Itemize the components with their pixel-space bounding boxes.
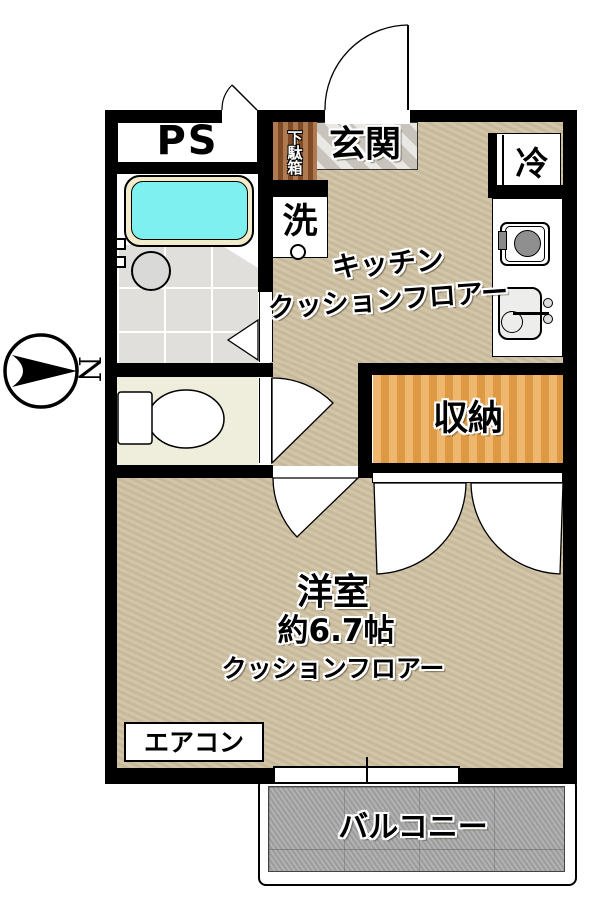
stove-knob — [498, 231, 507, 250]
room-label-2: 約6.7帖 — [236, 613, 436, 649]
wall-left — [105, 110, 117, 784]
faucet-knob — [543, 314, 553, 324]
wall-toilet-bottom — [105, 465, 273, 478]
ps-door-leaf — [232, 85, 257, 110]
wall-bottom — [460, 768, 577, 784]
ps-door-swing — [222, 85, 232, 110]
compass-circle — [5, 335, 77, 407]
wall-storage-left — [358, 363, 372, 478]
wall-top — [257, 110, 325, 122]
ps-label: PS — [117, 120, 258, 162]
shoe-cabinet-label: 下駄箱 — [273, 124, 317, 180]
room-label-1: 洋室 — [233, 574, 433, 612]
corridor-floor — [273, 363, 360, 478]
floor-plan: N PS 玄関 下駄箱 洗 冷 キッチン クッションフロアー 収納 洋室 約6.… — [0, 0, 601, 900]
balcony-label: バルコニー — [268, 810, 558, 846]
room-door-opening — [273, 466, 358, 478]
wall-bottom — [105, 768, 273, 784]
aircon-label: エアコン — [124, 722, 264, 762]
genkan-label: 玄関 — [312, 122, 418, 168]
bath-sink — [131, 251, 171, 291]
toilet-room — [117, 377, 258, 465]
wall-bath-side — [258, 122, 273, 292]
compass-north-label: N — [71, 356, 106, 382]
wall-storage-bottom — [372, 463, 563, 472]
faucet-knob — [543, 298, 553, 308]
compass: N — [5, 335, 106, 407]
fridge-label: 冷 — [504, 136, 560, 190]
toilet-door-panel — [259, 378, 272, 463]
wall-bath-bottom — [105, 363, 273, 377]
washer-label: 洗 — [272, 198, 328, 246]
wall-ps-bottom — [117, 163, 258, 174]
storage-label: 収納 — [373, 400, 563, 438]
balcony-window-divider — [366, 757, 368, 784]
compass-needle — [12, 355, 77, 387]
wall-shoe-bottom — [272, 180, 328, 196]
wall-top — [410, 110, 577, 122]
stove-burner — [514, 230, 541, 257]
entrance-door-swing — [325, 25, 408, 110]
closet-door-track — [372, 472, 563, 483]
room-label-3: クッションフロアー — [233, 653, 433, 683]
wall-right — [563, 110, 577, 784]
bathtub-water — [131, 181, 248, 240]
wall-storage-top — [358, 363, 577, 375]
